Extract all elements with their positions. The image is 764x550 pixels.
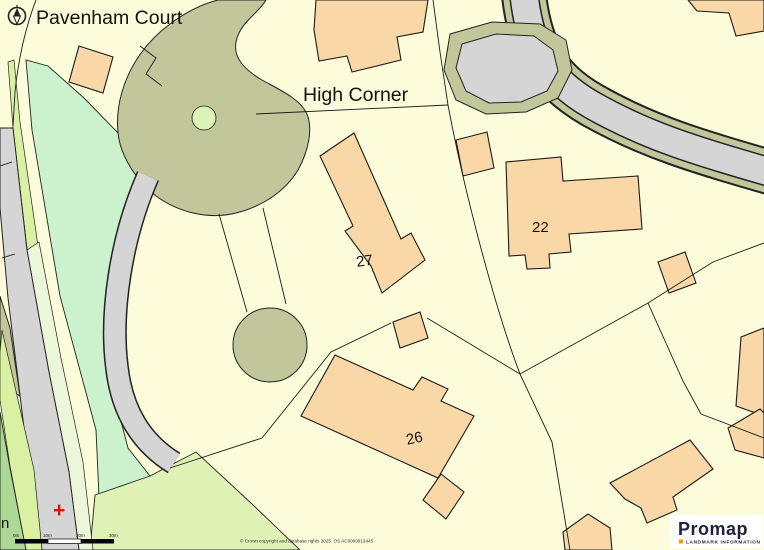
scale-tick-2: 20m (76, 533, 85, 538)
scale-segment-1 (15, 539, 48, 544)
label-27: 27 (355, 252, 374, 271)
promap-logo-tagline: LANDMARK INFORMATION (686, 540, 761, 546)
promap-logo-text: Promap (678, 519, 748, 539)
location-marker-cross: + (53, 499, 65, 522)
scale-tick-1: 10m (43, 533, 52, 538)
landmark-dot-icon (679, 540, 683, 544)
turning-circle (233, 308, 307, 382)
copyright-text: © Crown copyright and database rights 20… (240, 538, 374, 544)
scale-segment-3 (81, 539, 114, 544)
label-22: 22 (532, 219, 549, 236)
label-26: 26 (405, 429, 425, 449)
label-street-partial: n (1, 515, 9, 532)
building-right-edge (736, 328, 764, 416)
scale-segment-2 (48, 539, 81, 544)
map-viewport: Pavenham Court High Corner 27 22 26 n + … (0, 0, 764, 550)
culdesac-head (456, 34, 558, 103)
scale-tick-0: 0m (13, 533, 20, 538)
grass-circle (192, 106, 216, 130)
map-canvas[interactable]: Pavenham Court High Corner 27 22 26 n + … (0, 0, 764, 550)
promap-logo: Promap LANDMARK INFORMATION (670, 515, 763, 548)
label-high-corner: High Corner (303, 84, 409, 106)
scale-tick-3: 30m (109, 533, 118, 538)
label-pavenham-court: Pavenham Court (36, 7, 183, 29)
